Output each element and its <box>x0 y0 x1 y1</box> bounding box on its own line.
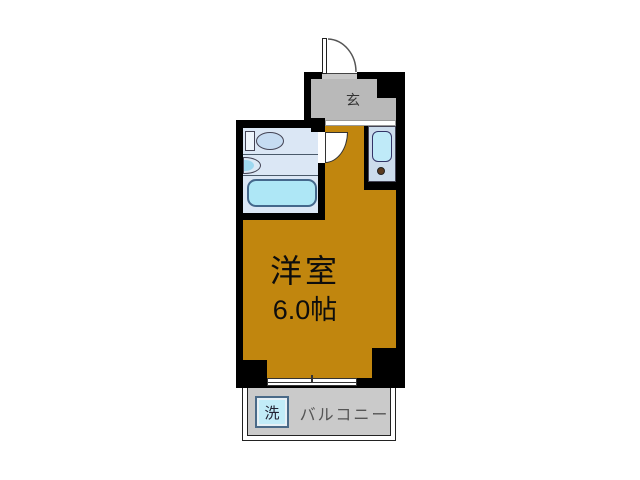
entrance-step-edge <box>325 120 396 126</box>
entrance-doorstep <box>322 73 357 79</box>
kitchen-sink-icon <box>372 131 392 162</box>
bathtub-icon <box>247 179 317 207</box>
wall <box>304 72 311 121</box>
entrance-label: 玄 <box>331 91 375 109</box>
wall <box>236 120 325 128</box>
wall <box>396 72 405 388</box>
wall <box>267 386 357 388</box>
toilet-tank-icon <box>245 131 255 151</box>
balcony-label: バルコニー <box>292 403 397 423</box>
main-room-area <box>243 348 372 360</box>
bathroom-divider-line <box>243 175 318 176</box>
main-room-area <box>325 190 396 220</box>
window-center-tick <box>311 375 313 382</box>
washing-machine-label: 洗 <box>264 402 279 423</box>
room-size-label: 6.0帖 <box>235 291 375 323</box>
wall <box>236 213 325 220</box>
main-room-area <box>267 360 372 378</box>
stove-burner-icon <box>377 167 385 175</box>
wall <box>236 360 267 388</box>
bathroom-divider-line <box>243 154 318 155</box>
wall <box>377 79 397 98</box>
room-name-label: 洋室 <box>235 250 375 288</box>
wall <box>364 126 368 190</box>
floor-plan: 洗 玄 洋室 6.0帖 バルコニー <box>0 0 640 480</box>
entrance-door-arc-icon <box>327 37 358 73</box>
washing-machine: 洗 <box>255 396 289 428</box>
window-track-line <box>268 382 356 383</box>
toilet-bowl-icon <box>256 132 284 150</box>
bathroom-door-gap <box>318 132 325 163</box>
wall <box>318 163 325 220</box>
wall <box>364 182 396 190</box>
wall <box>357 378 405 388</box>
